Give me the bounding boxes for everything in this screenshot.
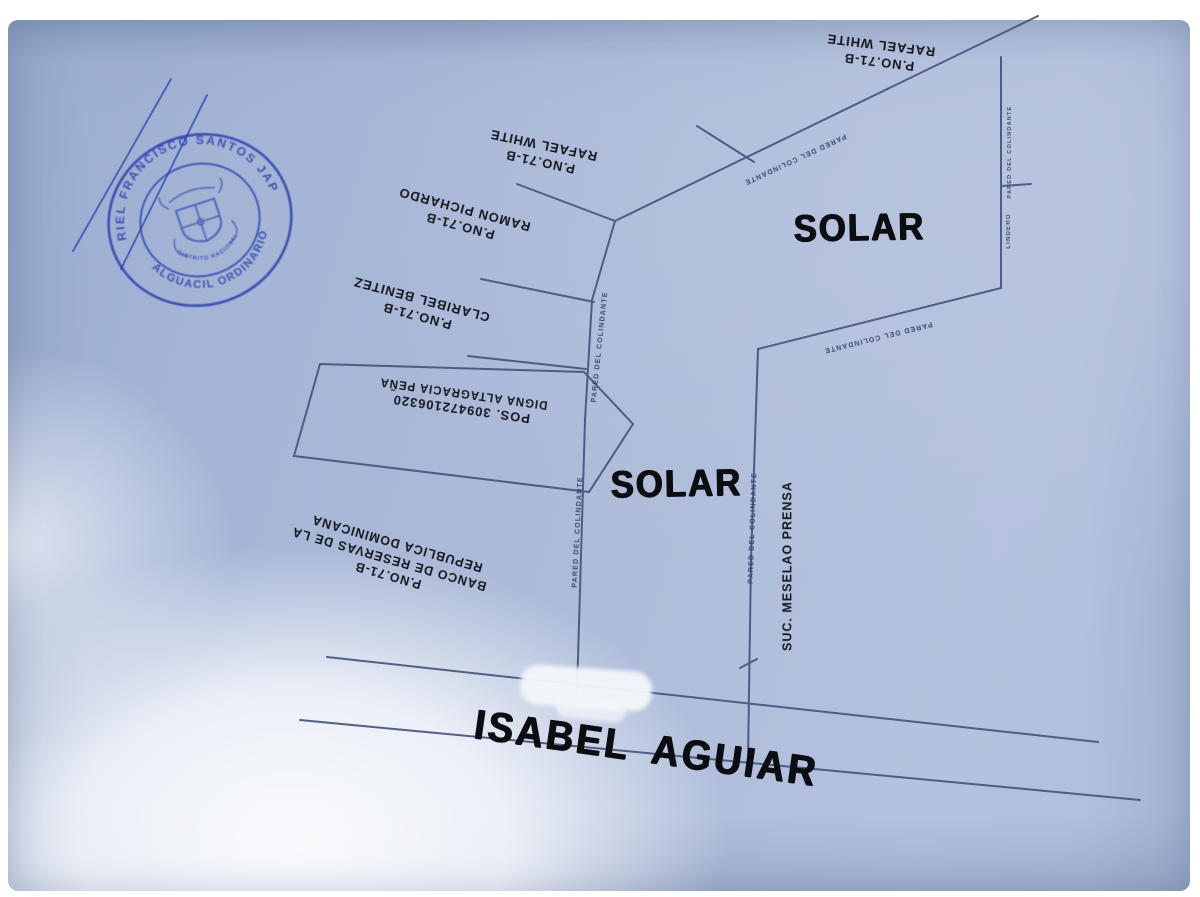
boundary-stub-tick xyxy=(697,126,754,162)
annotation-pared-east-upper: PARED DEL COLINDANTE xyxy=(1007,106,1013,199)
solar-label-center: SOLAR xyxy=(610,462,742,508)
solar-label-top-right: SOLAR xyxy=(793,206,925,252)
parcel-label-suc-prensa: SUC. MESELAO PRENSA xyxy=(779,479,795,654)
parcel-owner: SUC. MESELAO PRENSA xyxy=(780,481,794,651)
annotation-lindero-east-lower: LINDERO xyxy=(1006,213,1012,248)
photographed-survey-document: ARIEL FRANCISCO SANTOS JAPA ALGUACIL ORD… xyxy=(0,0,1200,897)
boundary-white-pichardo xyxy=(517,184,615,221)
street-upper-line xyxy=(327,657,1098,742)
stamp-arc-top-text: ARIEL FRANCISCO SANTOS JAPA xyxy=(90,110,283,249)
stamp-arc-bottom-text: ALGUACIL ORDINARIO xyxy=(148,225,283,307)
svg-text:ARIEL FRANCISCO SANTOS JAPA: ARIEL FRANCISCO SANTOS JAPA xyxy=(90,110,283,249)
boundary-east-tick xyxy=(1001,184,1031,186)
alguacil-round-stamp: ARIEL FRANCISCO SANTOS JAPA ALGUACIL ORD… xyxy=(40,50,300,310)
boundary-pichardo-benitez xyxy=(481,279,594,302)
parcel-digna-outline xyxy=(294,364,633,492)
boundary-benitez-parcel xyxy=(468,356,586,369)
svg-text:ALGUACIL ORDINARIO: ALGUACIL ORDINARIO xyxy=(148,225,283,307)
